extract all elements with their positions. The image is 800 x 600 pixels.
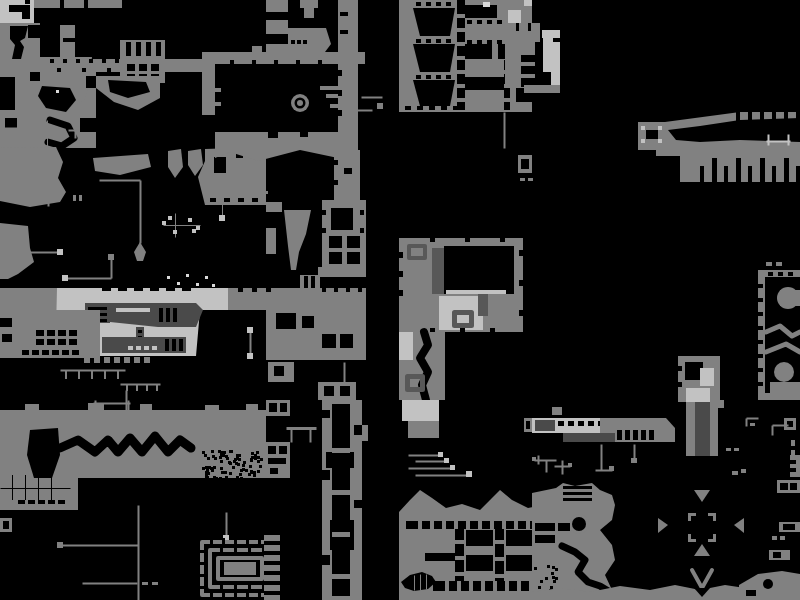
game-map-screen	[0, 0, 800, 600]
map-viewport[interactable]	[0, 0, 800, 600]
